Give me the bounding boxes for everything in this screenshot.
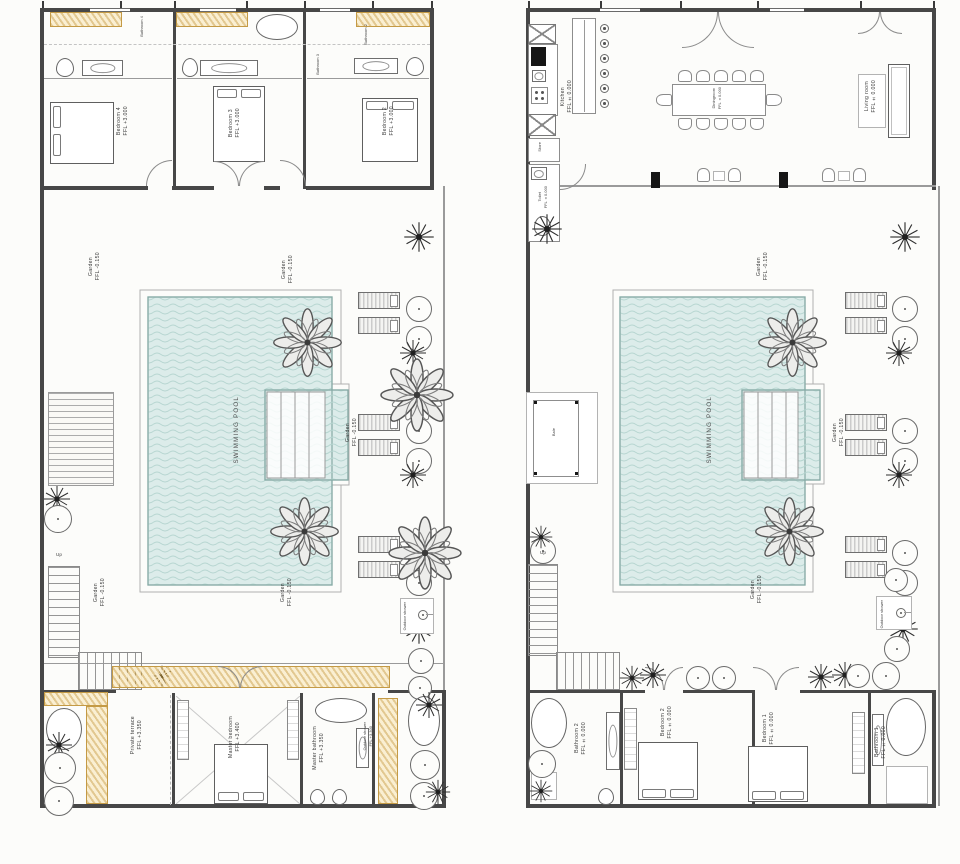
shrub-tree bbox=[530, 212, 564, 246]
wall bbox=[40, 804, 446, 808]
toilet bbox=[56, 58, 74, 77]
sun-lounger bbox=[845, 439, 887, 456]
fridge bbox=[531, 47, 546, 66]
dimension-tick bbox=[680, 1, 682, 8]
terrace-chair bbox=[822, 168, 835, 182]
side-table bbox=[406, 296, 432, 322]
door-opening bbox=[214, 186, 264, 190]
planter-box bbox=[50, 12, 122, 27]
column bbox=[779, 172, 788, 188]
staircase bbox=[48, 566, 80, 658]
dining-chair bbox=[732, 118, 746, 130]
dining-chair bbox=[714, 70, 728, 82]
shower-arm bbox=[904, 612, 911, 613]
label-outdoor-shower: Outdoor showerFFL +3.300 bbox=[363, 722, 373, 750]
terrace-edge-line bbox=[528, 185, 936, 187]
dining-chair bbox=[714, 118, 728, 130]
shaft-box bbox=[528, 114, 556, 136]
bidet bbox=[332, 789, 347, 805]
palm-tree bbox=[377, 355, 457, 435]
planter-box bbox=[86, 706, 108, 804]
label-bathroom-1: Bathroom 1FFL ±0.000 bbox=[874, 726, 887, 758]
vanity-sink bbox=[82, 60, 123, 76]
bar-stool bbox=[600, 54, 609, 63]
dining-chair bbox=[678, 70, 692, 82]
dimension-tick bbox=[933, 1, 935, 8]
pillow bbox=[241, 89, 261, 98]
label-private-terrace: Private terraceFFL +3.350 bbox=[130, 716, 143, 754]
sun-lounger bbox=[845, 292, 887, 309]
sun-lounger bbox=[358, 317, 400, 334]
planter-pot bbox=[44, 786, 74, 816]
door-swing bbox=[214, 161, 239, 186]
door-swing bbox=[880, 12, 902, 34]
palm-tree bbox=[755, 305, 830, 380]
dimension-tick bbox=[528, 1, 530, 8]
stove-burners bbox=[535, 91, 538, 94]
dimension-tick bbox=[120, 1, 122, 8]
label-outdoor-shower-box: Outdoor shower bbox=[880, 600, 885, 628]
vanity-sink bbox=[200, 60, 258, 76]
dimension-tick bbox=[304, 1, 306, 8]
label-garden: GardenFFL -0.150 bbox=[832, 418, 845, 446]
bale-platform bbox=[533, 400, 579, 477]
side-table bbox=[892, 296, 918, 322]
toilet bbox=[406, 57, 424, 76]
label-garden: GardenFFL -0.150 bbox=[756, 252, 769, 280]
shower-head-icon bbox=[896, 608, 906, 618]
window bbox=[600, 8, 640, 12]
toilet bbox=[182, 58, 198, 77]
shrub-tree bbox=[528, 778, 554, 804]
door-swing bbox=[776, 667, 799, 690]
wall bbox=[932, 8, 936, 190]
label-diningroom: DiningroomFFL ±0.000 bbox=[712, 87, 722, 109]
vanity-sink bbox=[606, 712, 620, 770]
dimension-tick bbox=[431, 1, 433, 8]
planter-pot bbox=[712, 666, 736, 690]
toilet bbox=[310, 789, 325, 805]
label-bathroom-2: Bathroom 2FFL ±0.000 bbox=[574, 722, 587, 754]
sun-lounger bbox=[358, 439, 400, 456]
label-master-bathroom: Master bathroomFFL +3.350 bbox=[312, 726, 325, 770]
planter-box bbox=[176, 12, 248, 27]
wall bbox=[932, 690, 936, 808]
door-swing bbox=[682, 12, 718, 48]
side-table bbox=[892, 540, 918, 566]
planter-pot bbox=[408, 648, 434, 674]
bathtub bbox=[531, 698, 567, 748]
wall bbox=[620, 690, 623, 808]
staircase bbox=[528, 564, 558, 656]
bar-stool bbox=[600, 84, 609, 93]
shower-head-icon bbox=[418, 610, 428, 620]
label-bedroom-3: Bedroom 3FFL +3.000 bbox=[228, 108, 241, 137]
terrace-chair bbox=[697, 168, 710, 182]
staircase bbox=[556, 652, 620, 690]
wardrobe bbox=[852, 712, 865, 774]
wall bbox=[173, 8, 176, 189]
sun-lounger bbox=[845, 536, 887, 553]
vanity-sink bbox=[531, 167, 547, 180]
dimension-tick bbox=[372, 1, 374, 8]
stove bbox=[531, 87, 548, 104]
terrace-table bbox=[713, 171, 725, 181]
dimension-tick bbox=[174, 1, 176, 8]
shrub-tree bbox=[398, 460, 428, 490]
label-store: Store bbox=[538, 142, 543, 152]
terrace-divider-dashed bbox=[170, 695, 171, 805]
bathtub bbox=[315, 698, 367, 723]
bar-stool bbox=[600, 24, 609, 33]
palm-tree bbox=[385, 513, 465, 593]
window bbox=[320, 8, 350, 12]
door-opening bbox=[148, 186, 172, 190]
pillow bbox=[780, 791, 804, 800]
shrub-tree bbox=[402, 220, 436, 254]
label-bathroom-4: Bathroom 4 bbox=[140, 16, 145, 37]
shrub-tree bbox=[884, 460, 914, 490]
pillow bbox=[243, 792, 264, 801]
window bbox=[90, 8, 130, 12]
pillow bbox=[53, 106, 61, 128]
label-bedroom-2: Bedroom 2FFL +3.000 bbox=[382, 106, 395, 135]
wardrobe bbox=[177, 700, 189, 760]
shrub-tree bbox=[884, 338, 914, 368]
palm-tree bbox=[270, 305, 345, 380]
counter-line bbox=[584, 20, 585, 112]
bathtub bbox=[886, 698, 926, 756]
dining-chair bbox=[678, 118, 692, 130]
timber-deck bbox=[48, 392, 114, 486]
wall bbox=[430, 8, 434, 190]
label-garden: GardenFFL -0.150 bbox=[93, 578, 106, 606]
terrace-chair bbox=[728, 168, 741, 182]
pillow bbox=[642, 789, 666, 798]
wardrobe bbox=[624, 708, 637, 770]
boundary-fence bbox=[938, 186, 940, 806]
label-outdoor-shower-box: Outdoor shower bbox=[403, 602, 408, 630]
shrub-tree bbox=[888, 220, 922, 254]
palm-tree bbox=[267, 494, 342, 569]
terrace-chair bbox=[853, 168, 866, 182]
dining-chair bbox=[696, 70, 710, 82]
dining-chair bbox=[696, 118, 710, 130]
sun-lounger bbox=[845, 414, 887, 431]
label-bathroom-2: Bathroom 2 bbox=[364, 24, 369, 45]
vanity-sink bbox=[354, 58, 398, 74]
dimension-tick bbox=[757, 1, 759, 8]
wall bbox=[172, 693, 175, 805]
bale-post bbox=[534, 472, 537, 475]
label-living-room: Living roomFFL ±0.000 bbox=[864, 80, 877, 112]
bale-post bbox=[575, 401, 578, 404]
shaft-box bbox=[528, 24, 556, 44]
sun-lounger bbox=[845, 317, 887, 334]
pillow bbox=[218, 792, 239, 801]
shrub-tree bbox=[638, 660, 668, 690]
pillow bbox=[217, 89, 237, 98]
kitchen-sink bbox=[532, 70, 546, 82]
sofa bbox=[888, 64, 910, 138]
label-bedroom-2: Bedroom 2FFL ±0.000 bbox=[660, 706, 673, 738]
door-swing bbox=[146, 160, 172, 186]
planter-pot bbox=[846, 664, 870, 688]
bar-stool bbox=[600, 39, 609, 48]
terrace-table bbox=[838, 171, 850, 181]
label-garden: GardenFFL -0.150 bbox=[281, 255, 294, 283]
dimension-tick bbox=[600, 1, 602, 8]
wall bbox=[303, 8, 306, 189]
door-swing bbox=[753, 667, 776, 690]
shower-arm bbox=[426, 614, 433, 615]
shrub-tree bbox=[424, 778, 452, 806]
store-room bbox=[528, 138, 560, 162]
planter-pot bbox=[44, 752, 76, 784]
bulkhead-dashed-line bbox=[44, 44, 430, 45]
dimension-tick bbox=[42, 1, 44, 8]
window bbox=[200, 8, 236, 12]
planter-pot bbox=[528, 750, 556, 778]
bale-post bbox=[575, 472, 578, 475]
palm-tree bbox=[752, 494, 827, 569]
pillow bbox=[670, 789, 694, 798]
sun-lounger bbox=[845, 561, 887, 578]
label-garden: GardenFFL -0.150 bbox=[88, 252, 101, 280]
wardrobe bbox=[287, 700, 299, 760]
label-bedroom-4: Bedroom 4FFL +3.000 bbox=[116, 106, 129, 135]
label-master-bedroom: Master bedroomFFL +3.400 bbox=[228, 716, 241, 758]
label-garden: GardenFFL -0.150 bbox=[750, 575, 763, 603]
planter-pot bbox=[884, 568, 908, 592]
bathroom-partition-line bbox=[44, 78, 172, 79]
wall bbox=[300, 693, 303, 805]
garden-table bbox=[44, 505, 72, 533]
planter-pot bbox=[872, 662, 900, 690]
label-garden: GardenFFL -0.150 bbox=[345, 418, 358, 446]
dining-chair bbox=[750, 118, 764, 130]
label-kitchen: KitchenFFL ±0.000 bbox=[560, 80, 573, 112]
door-swing bbox=[239, 161, 264, 186]
shrub-tree bbox=[414, 690, 444, 720]
dimension-tick bbox=[246, 1, 248, 8]
label-bedroom-1: Bedroom 1FFL ±0.000 bbox=[762, 712, 775, 744]
toilet bbox=[598, 788, 614, 805]
bathtub bbox=[256, 14, 298, 40]
bale-post bbox=[534, 401, 537, 404]
planter-pot bbox=[686, 666, 710, 690]
dining-chair bbox=[766, 94, 782, 106]
label-bale: Bale bbox=[552, 428, 557, 436]
pillow bbox=[53, 134, 61, 156]
planter-box bbox=[378, 698, 398, 804]
dimension-tick bbox=[860, 1, 862, 8]
shower-tray bbox=[886, 766, 928, 804]
planter-pot bbox=[410, 750, 440, 780]
column bbox=[651, 172, 660, 188]
door-swing bbox=[858, 12, 880, 34]
dining-chair bbox=[656, 94, 672, 106]
label-garden: GardenFFL -0.150 bbox=[280, 578, 293, 606]
window bbox=[770, 8, 804, 12]
bar-stool bbox=[600, 99, 609, 108]
sun-lounger bbox=[358, 292, 400, 309]
planter-box bbox=[44, 692, 108, 706]
wall bbox=[868, 690, 871, 808]
wall bbox=[40, 8, 44, 808]
label-up: Up bbox=[540, 550, 546, 555]
label-swimming-pool: SWIMMING POOL bbox=[233, 396, 240, 464]
dining-chair bbox=[750, 70, 764, 82]
door-swing bbox=[718, 12, 754, 48]
pillow bbox=[752, 791, 776, 800]
label-up: Up bbox=[56, 552, 62, 557]
label-bathroom-3: Bathroom 3 bbox=[316, 54, 321, 75]
wall bbox=[526, 804, 936, 808]
side-table bbox=[892, 418, 918, 444]
bathroom-partition-line bbox=[307, 78, 429, 79]
bathroom-partition-line bbox=[177, 78, 302, 79]
floor-plan-sheet: Bedroom 4FFL +3.000 Bedroom 3FFL +3.000 … bbox=[0, 0, 960, 864]
label-swimming-pool: SWIMMING POOL bbox=[706, 396, 713, 464]
wall bbox=[683, 690, 753, 693]
bar-stool bbox=[600, 69, 609, 78]
dining-chair bbox=[732, 70, 746, 82]
planter-pot bbox=[884, 636, 910, 662]
shrub-tree bbox=[528, 524, 554, 550]
label-toilet: ToiletFFL ±0.000 bbox=[538, 186, 548, 208]
